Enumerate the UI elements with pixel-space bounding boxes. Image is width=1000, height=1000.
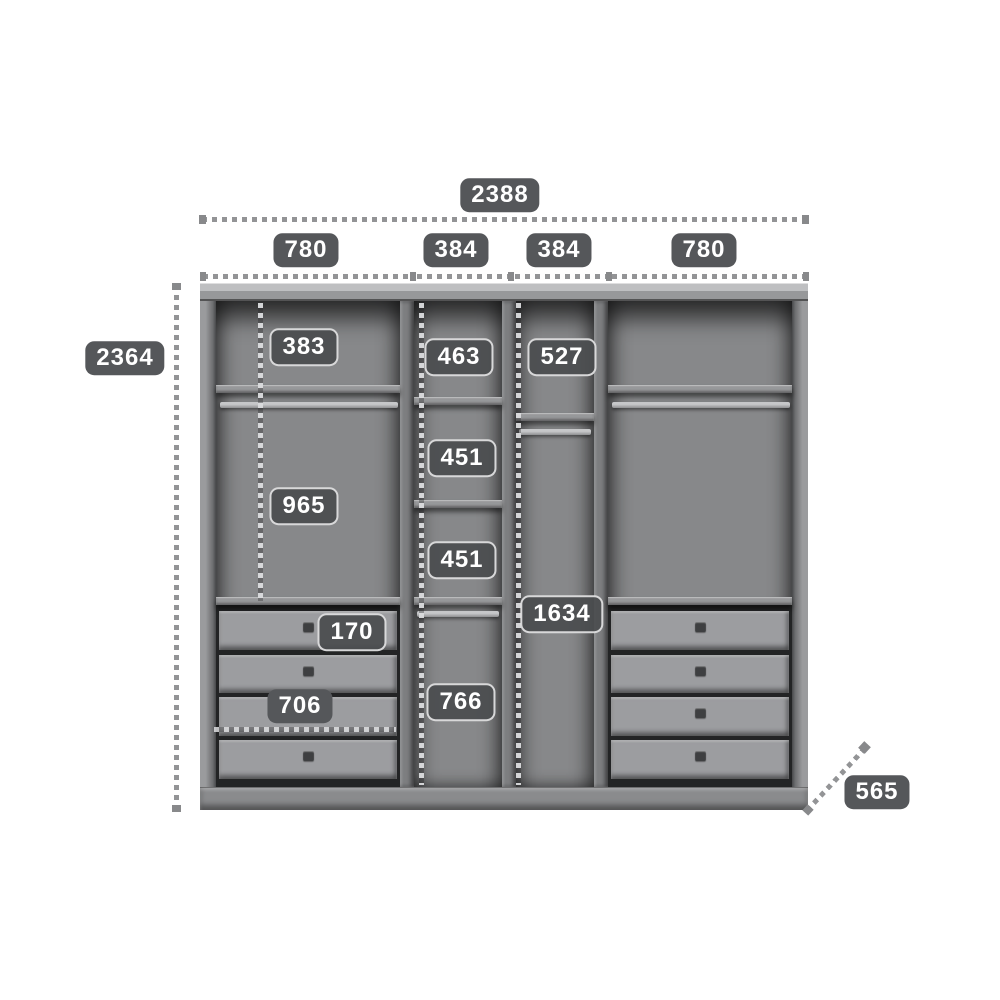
- divider-1: [400, 301, 414, 787]
- dim-label-left-lower: 965: [269, 487, 338, 525]
- dim-label-section2-width: 384: [423, 233, 488, 267]
- dim-line-total-width: [202, 217, 806, 222]
- base-panel: [200, 787, 808, 810]
- dim-label-total-height: 2364: [85, 341, 164, 375]
- divider-3: [594, 301, 608, 787]
- wardrobe-dimension-diagram: 2388 780 384 384 780 2364: [0, 0, 1000, 1000]
- section1-hanging-rod: [220, 402, 398, 408]
- section1-top-shelf: [216, 385, 400, 393]
- dim-label-mid2-upper: 527: [527, 338, 596, 376]
- dim-line-section1-vertical: [258, 303, 263, 601]
- section4-drawer-top-shelf: [608, 597, 792, 605]
- section1-drawer-2-knob: [303, 666, 314, 676]
- left-side-panel: [200, 301, 216, 787]
- dim-line-section4-width: [612, 274, 806, 279]
- section4-drawer-4-knob: [695, 751, 706, 761]
- section1-drawer-1-knob: [303, 622, 314, 632]
- dim-label-mid1-shelf3: 451: [427, 541, 496, 579]
- dim-line-total-height: [174, 285, 179, 810]
- section2-shelf-2: [414, 500, 502, 508]
- dim-end-total-height-bottom: [172, 805, 181, 812]
- dim-end-sections-a: [200, 272, 206, 281]
- dim-label-mid1-shelf2: 451: [427, 439, 496, 477]
- right-side-panel: [792, 301, 808, 787]
- section1-drawer-top-shelf: [216, 597, 400, 605]
- dim-end-sections-b: [410, 272, 416, 281]
- dim-end-sections-e: [803, 272, 809, 281]
- dim-end-sections-d: [606, 272, 612, 281]
- dim-label-mid1-shelf1: 463: [424, 338, 493, 376]
- dim-line-section3-width: [515, 274, 606, 279]
- dim-end-sections-c: [508, 272, 514, 281]
- dim-line-section2-vertical: [419, 303, 424, 785]
- dim-label-left-upper: 383: [269, 328, 338, 366]
- dim-end-total-width-right: [802, 215, 809, 224]
- dim-label-total-width: 2388: [460, 178, 539, 212]
- dim-label-section1-width: 780: [273, 233, 338, 267]
- dim-label-top-drawer: 170: [317, 613, 386, 651]
- dim-label-mid1-lower: 766: [426, 683, 495, 721]
- dim-label-depth: 565: [844, 775, 909, 809]
- section4-drawer-3-knob: [695, 708, 706, 718]
- section4-hanging-rod: [612, 402, 790, 408]
- dim-label-drawer-width: 706: [267, 689, 332, 723]
- section2-shelf-3: [414, 597, 502, 605]
- top-panel: [200, 283, 808, 301]
- dim-line-drawer-width: [214, 727, 396, 732]
- section4-top-shelf: [608, 385, 792, 393]
- dim-label-section3-width: 384: [526, 233, 591, 267]
- section3-hanging-rod: [519, 429, 591, 435]
- section3-shelf: [516, 413, 594, 421]
- section4-drawer-2-knob: [695, 666, 706, 676]
- section1-drawer-4-knob: [303, 751, 314, 761]
- dim-label-mid2-lower: 1634: [520, 595, 603, 633]
- dim-line-section1-width: [203, 274, 411, 279]
- dim-line-section2-width: [417, 274, 509, 279]
- dim-label-section4-width: 780: [671, 233, 736, 267]
- section2-shelf-1: [414, 397, 502, 405]
- dim-line-section3-vertical: [516, 303, 521, 785]
- section4-drawer-1-knob: [695, 622, 706, 632]
- divider-2: [502, 301, 516, 787]
- dim-end-total-width-left: [199, 215, 206, 224]
- dim-end-total-height-top: [172, 283, 181, 290]
- section2-hanging-rod: [417, 611, 499, 617]
